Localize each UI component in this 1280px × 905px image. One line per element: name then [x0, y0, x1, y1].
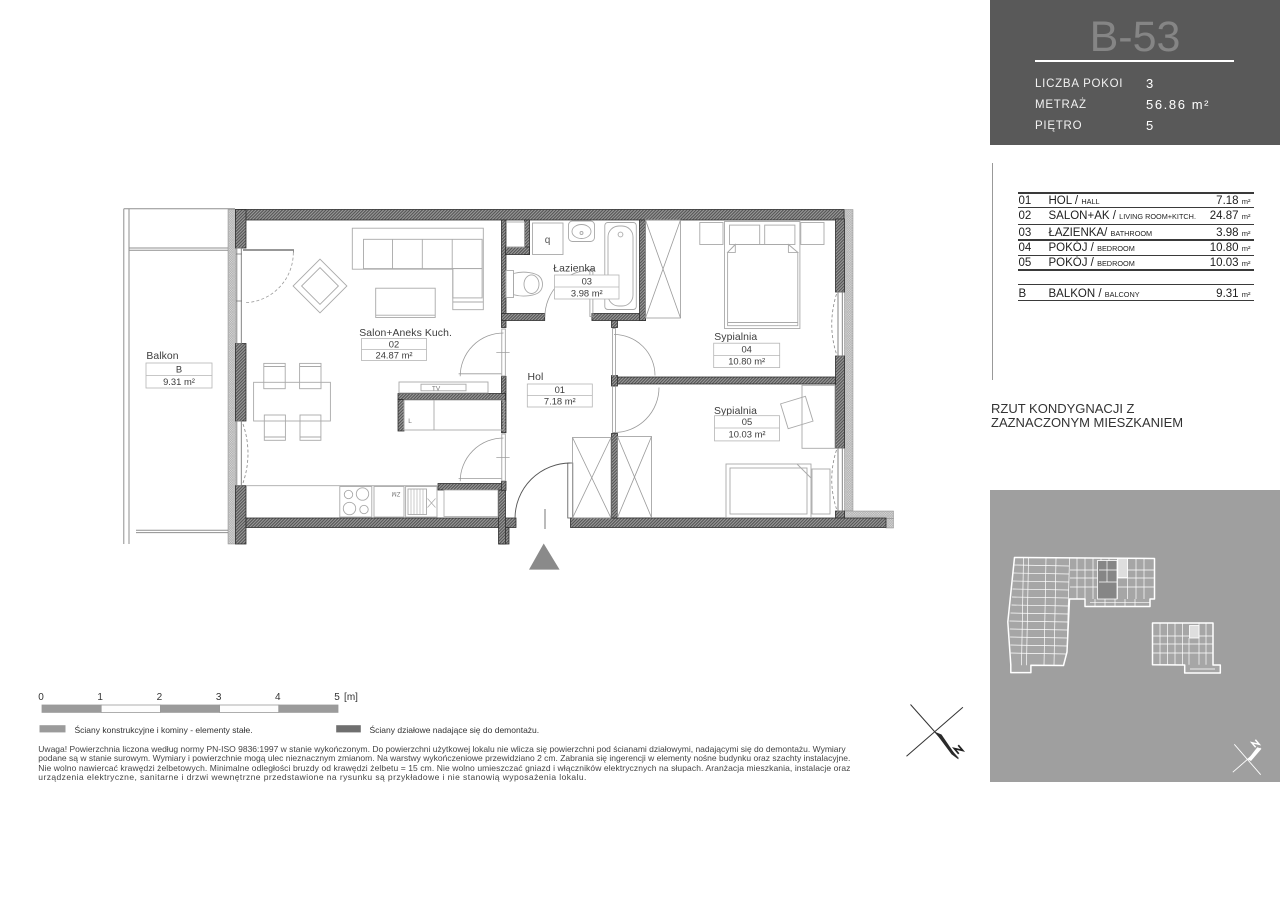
svg-text:10.03 m²: 10.03 m²	[729, 429, 766, 440]
svg-text:04: 04	[741, 344, 751, 355]
svg-text:24.87 m²: 24.87 m²	[376, 350, 413, 361]
svg-text:03: 03	[582, 276, 592, 287]
svg-text:10.80 m²: 10.80 m²	[728, 356, 765, 367]
svg-text:1: 1	[97, 692, 103, 703]
svg-text:2: 2	[157, 692, 163, 703]
svg-text:B: B	[176, 364, 182, 375]
svg-text:4: 4	[275, 692, 281, 703]
svg-text:TV: TV	[432, 386, 441, 393]
svg-text:Hol: Hol	[528, 372, 544, 383]
svg-text:3.98 m²: 3.98 m²	[571, 288, 603, 299]
svg-text:q: q	[545, 235, 551, 246]
svg-text:3: 3	[216, 692, 222, 703]
svg-text:ZM: ZM	[392, 490, 401, 496]
svg-text:Balkon: Balkon	[146, 351, 178, 362]
svg-text:02: 02	[389, 339, 399, 350]
svg-text:Salon+Aneks Kuch.: Salon+Aneks Kuch.	[359, 328, 452, 339]
svg-text:[m]: [m]	[344, 692, 358, 703]
svg-text:0: 0	[38, 692, 44, 703]
svg-text:5: 5	[334, 692, 340, 703]
svg-text:7.18 m²: 7.18 m²	[544, 396, 576, 407]
svg-text:05: 05	[742, 416, 752, 427]
svg-text:L: L	[408, 418, 412, 425]
svg-text:01: 01	[555, 384, 565, 395]
svg-text:Sypialnia: Sypialnia	[714, 332, 757, 343]
svg-text:9.31 m²: 9.31 m²	[163, 376, 195, 387]
svg-text:Łazienka: Łazienka	[553, 264, 596, 275]
